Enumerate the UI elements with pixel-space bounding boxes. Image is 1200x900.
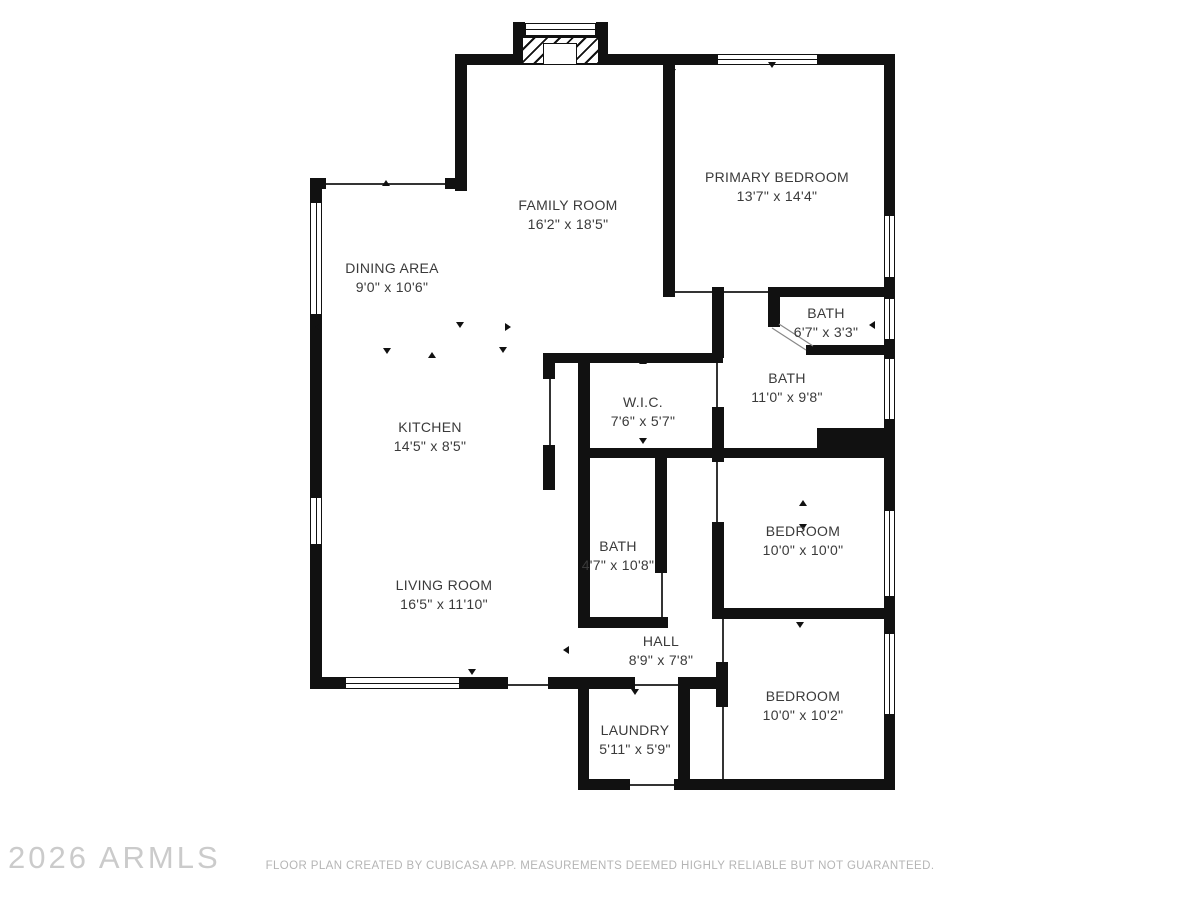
wall-segment bbox=[455, 54, 467, 191]
direction-marker bbox=[639, 358, 647, 364]
wall-segment bbox=[578, 353, 590, 623]
wall-segment bbox=[578, 682, 589, 790]
wall-segment bbox=[768, 287, 895, 297]
direction-marker bbox=[768, 62, 776, 68]
room-label-primary-bedroom: PRIMARY BEDROOM 13'7" x 14'4" bbox=[705, 168, 849, 206]
footer-disclaimer: FLOOR PLAN CREATED BY CUBICASA APP. MEAS… bbox=[266, 860, 935, 872]
room-label-wic: W.I.C. 7'6" x 5'7" bbox=[611, 393, 676, 431]
wall-segment bbox=[310, 677, 345, 689]
wall-segment bbox=[712, 608, 895, 619]
armls-watermark: 2026 ARMLS bbox=[8, 840, 221, 876]
wall-segment bbox=[712, 287, 724, 358]
direction-marker bbox=[799, 500, 807, 506]
direction-marker bbox=[499, 347, 507, 353]
window-symbol bbox=[345, 677, 460, 689]
direction-marker bbox=[315, 323, 321, 331]
wall-segment bbox=[768, 287, 780, 327]
room-label-hall: HALL 8'9" x 7'8" bbox=[629, 632, 694, 670]
room-name: LAUNDRY bbox=[599, 721, 671, 740]
wall-segment bbox=[655, 448, 667, 573]
direction-marker bbox=[383, 348, 391, 354]
shower-block bbox=[817, 428, 895, 448]
direction-marker bbox=[428, 352, 436, 358]
room-label-laundry: LAUNDRY 5'11" x 5'9" bbox=[599, 721, 671, 759]
direction-marker bbox=[468, 669, 476, 675]
door-opening bbox=[722, 619, 724, 662]
room-name: DINING AREA bbox=[345, 259, 439, 278]
room-label-bedroom-2: BEDROOM 10'0" x 10'2" bbox=[763, 687, 844, 725]
room-name: HALL bbox=[629, 632, 694, 651]
door-opening bbox=[661, 573, 663, 617]
room-dims: 11'0" x 9'8" bbox=[751, 388, 823, 407]
fireplace-firebox bbox=[543, 43, 577, 65]
room-label-kitchen: KITCHEN 14'5" x 8'5" bbox=[394, 418, 467, 456]
room-label-dining-area: DINING AREA 9'0" x 10'6" bbox=[345, 259, 439, 297]
room-dims: 8'9" x 7'8" bbox=[629, 651, 694, 670]
door-opening bbox=[675, 291, 712, 293]
room-label-bedroom-1: BEDROOM 10'0" x 10'0" bbox=[763, 522, 844, 560]
window-symbol bbox=[310, 497, 322, 545]
door-opening bbox=[630, 784, 674, 786]
room-name: BATH bbox=[794, 304, 859, 323]
room-dims: 6'7" x 3'3" bbox=[794, 323, 859, 342]
direction-marker bbox=[563, 646, 569, 654]
wall-segment bbox=[712, 522, 724, 612]
window-symbol bbox=[884, 510, 895, 597]
direction-marker bbox=[456, 322, 464, 328]
room-name: FAMILY ROOM bbox=[518, 196, 617, 215]
room-name: BATH bbox=[582, 537, 655, 556]
wall-segment bbox=[663, 54, 675, 297]
wall-segment bbox=[578, 617, 668, 628]
window-symbol bbox=[884, 633, 895, 715]
floor-plan-canvas: FAMILY ROOM 16'2" x 18'5" PRIMARY BEDROO… bbox=[0, 0, 1200, 900]
direction-marker bbox=[505, 323, 511, 331]
window-symbol bbox=[884, 298, 895, 340]
room-name: BATH bbox=[751, 369, 823, 388]
direction-marker bbox=[668, 69, 676, 75]
room-dims: 16'2" x 18'5" bbox=[518, 215, 617, 234]
direction-marker bbox=[796, 622, 804, 628]
wall-segment bbox=[884, 54, 895, 215]
door-opening bbox=[716, 462, 718, 522]
room-name: KITCHEN bbox=[394, 418, 467, 437]
wall-segment bbox=[578, 448, 895, 458]
room-dims: 5'11" x 5'9" bbox=[599, 740, 671, 759]
wall-segment bbox=[460, 677, 508, 689]
door-opening bbox=[716, 358, 718, 407]
room-dims: 7'6" x 5'7" bbox=[611, 412, 676, 431]
wall-segment bbox=[310, 178, 326, 189]
direction-marker bbox=[639, 438, 647, 444]
room-label-bath-hall: BATH 4'7" x 10'8" bbox=[582, 537, 655, 575]
room-label-family-room: FAMILY ROOM 16'2" x 18'5" bbox=[518, 196, 617, 234]
room-dims: 13'7" x 14'4" bbox=[705, 187, 849, 206]
window-symbol bbox=[884, 215, 895, 278]
wall-segment bbox=[604, 54, 668, 65]
wall-segment bbox=[548, 677, 635, 689]
room-dims: 10'0" x 10'2" bbox=[763, 706, 844, 725]
fireplace-window bbox=[525, 23, 596, 36]
room-label-bath-large: BATH 11'0" x 9'8" bbox=[751, 369, 823, 407]
wall-segment bbox=[806, 345, 884, 355]
room-label-bath-small: BATH 6'7" x 3'3" bbox=[794, 304, 859, 342]
room-name: BEDROOM bbox=[763, 522, 844, 541]
room-name: PRIMARY BEDROOM bbox=[705, 168, 849, 187]
wall-segment bbox=[678, 677, 690, 790]
window-symbol bbox=[310, 202, 322, 315]
wall-segment bbox=[543, 353, 555, 379]
room-name: W.I.C. bbox=[611, 393, 676, 412]
room-dims: 9'0" x 10'6" bbox=[345, 278, 439, 297]
wall-segment bbox=[310, 545, 322, 689]
wall-segment bbox=[310, 315, 322, 497]
wall-segment bbox=[690, 779, 895, 790]
direction-marker bbox=[631, 689, 639, 695]
room-dims: 10'0" x 10'0" bbox=[763, 541, 844, 560]
room-dims: 4'7" x 10'8" bbox=[582, 556, 655, 575]
door-opening bbox=[635, 684, 678, 686]
door-opening bbox=[549, 379, 551, 445]
room-name: LIVING ROOM bbox=[396, 576, 493, 595]
window-symbol bbox=[884, 358, 895, 420]
wall-segment bbox=[545, 353, 723, 363]
room-dims: 14'5" x 8'5" bbox=[394, 437, 467, 456]
direction-marker bbox=[869, 321, 875, 329]
room-name: BEDROOM bbox=[763, 687, 844, 706]
door-opening bbox=[724, 291, 768, 293]
room-dims: 16'5" x 11'10" bbox=[396, 595, 493, 614]
door-opening bbox=[508, 684, 548, 686]
room-label-living-room: LIVING ROOM 16'5" x 11'10" bbox=[396, 576, 493, 614]
door-opening bbox=[722, 707, 724, 779]
wall-segment bbox=[884, 340, 895, 358]
direction-marker bbox=[382, 180, 390, 186]
wall-segment bbox=[543, 445, 555, 490]
